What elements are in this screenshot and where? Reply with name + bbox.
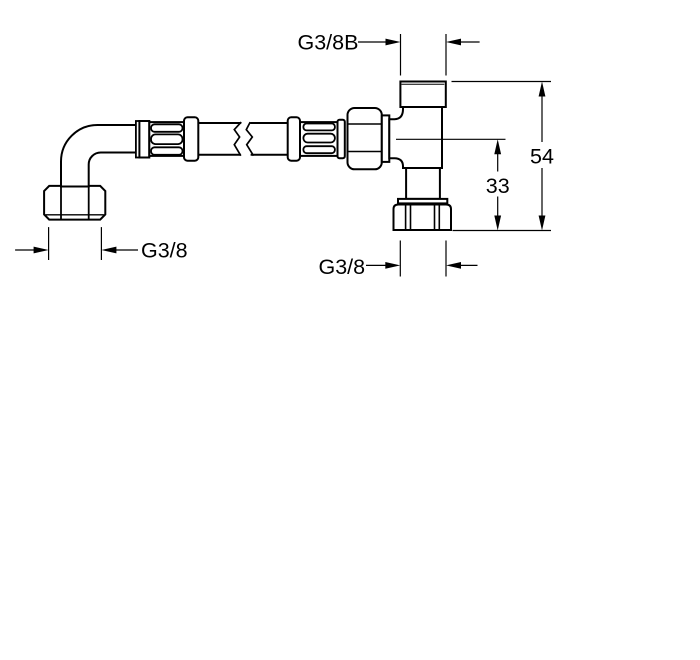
svg-text:33: 33 xyxy=(486,174,510,198)
svg-text:G3/8B: G3/8B xyxy=(298,30,359,54)
svg-text:G3/8: G3/8 xyxy=(141,239,188,263)
svg-text:54: 54 xyxy=(530,145,554,169)
svg-text:G3/8: G3/8 xyxy=(319,255,366,279)
